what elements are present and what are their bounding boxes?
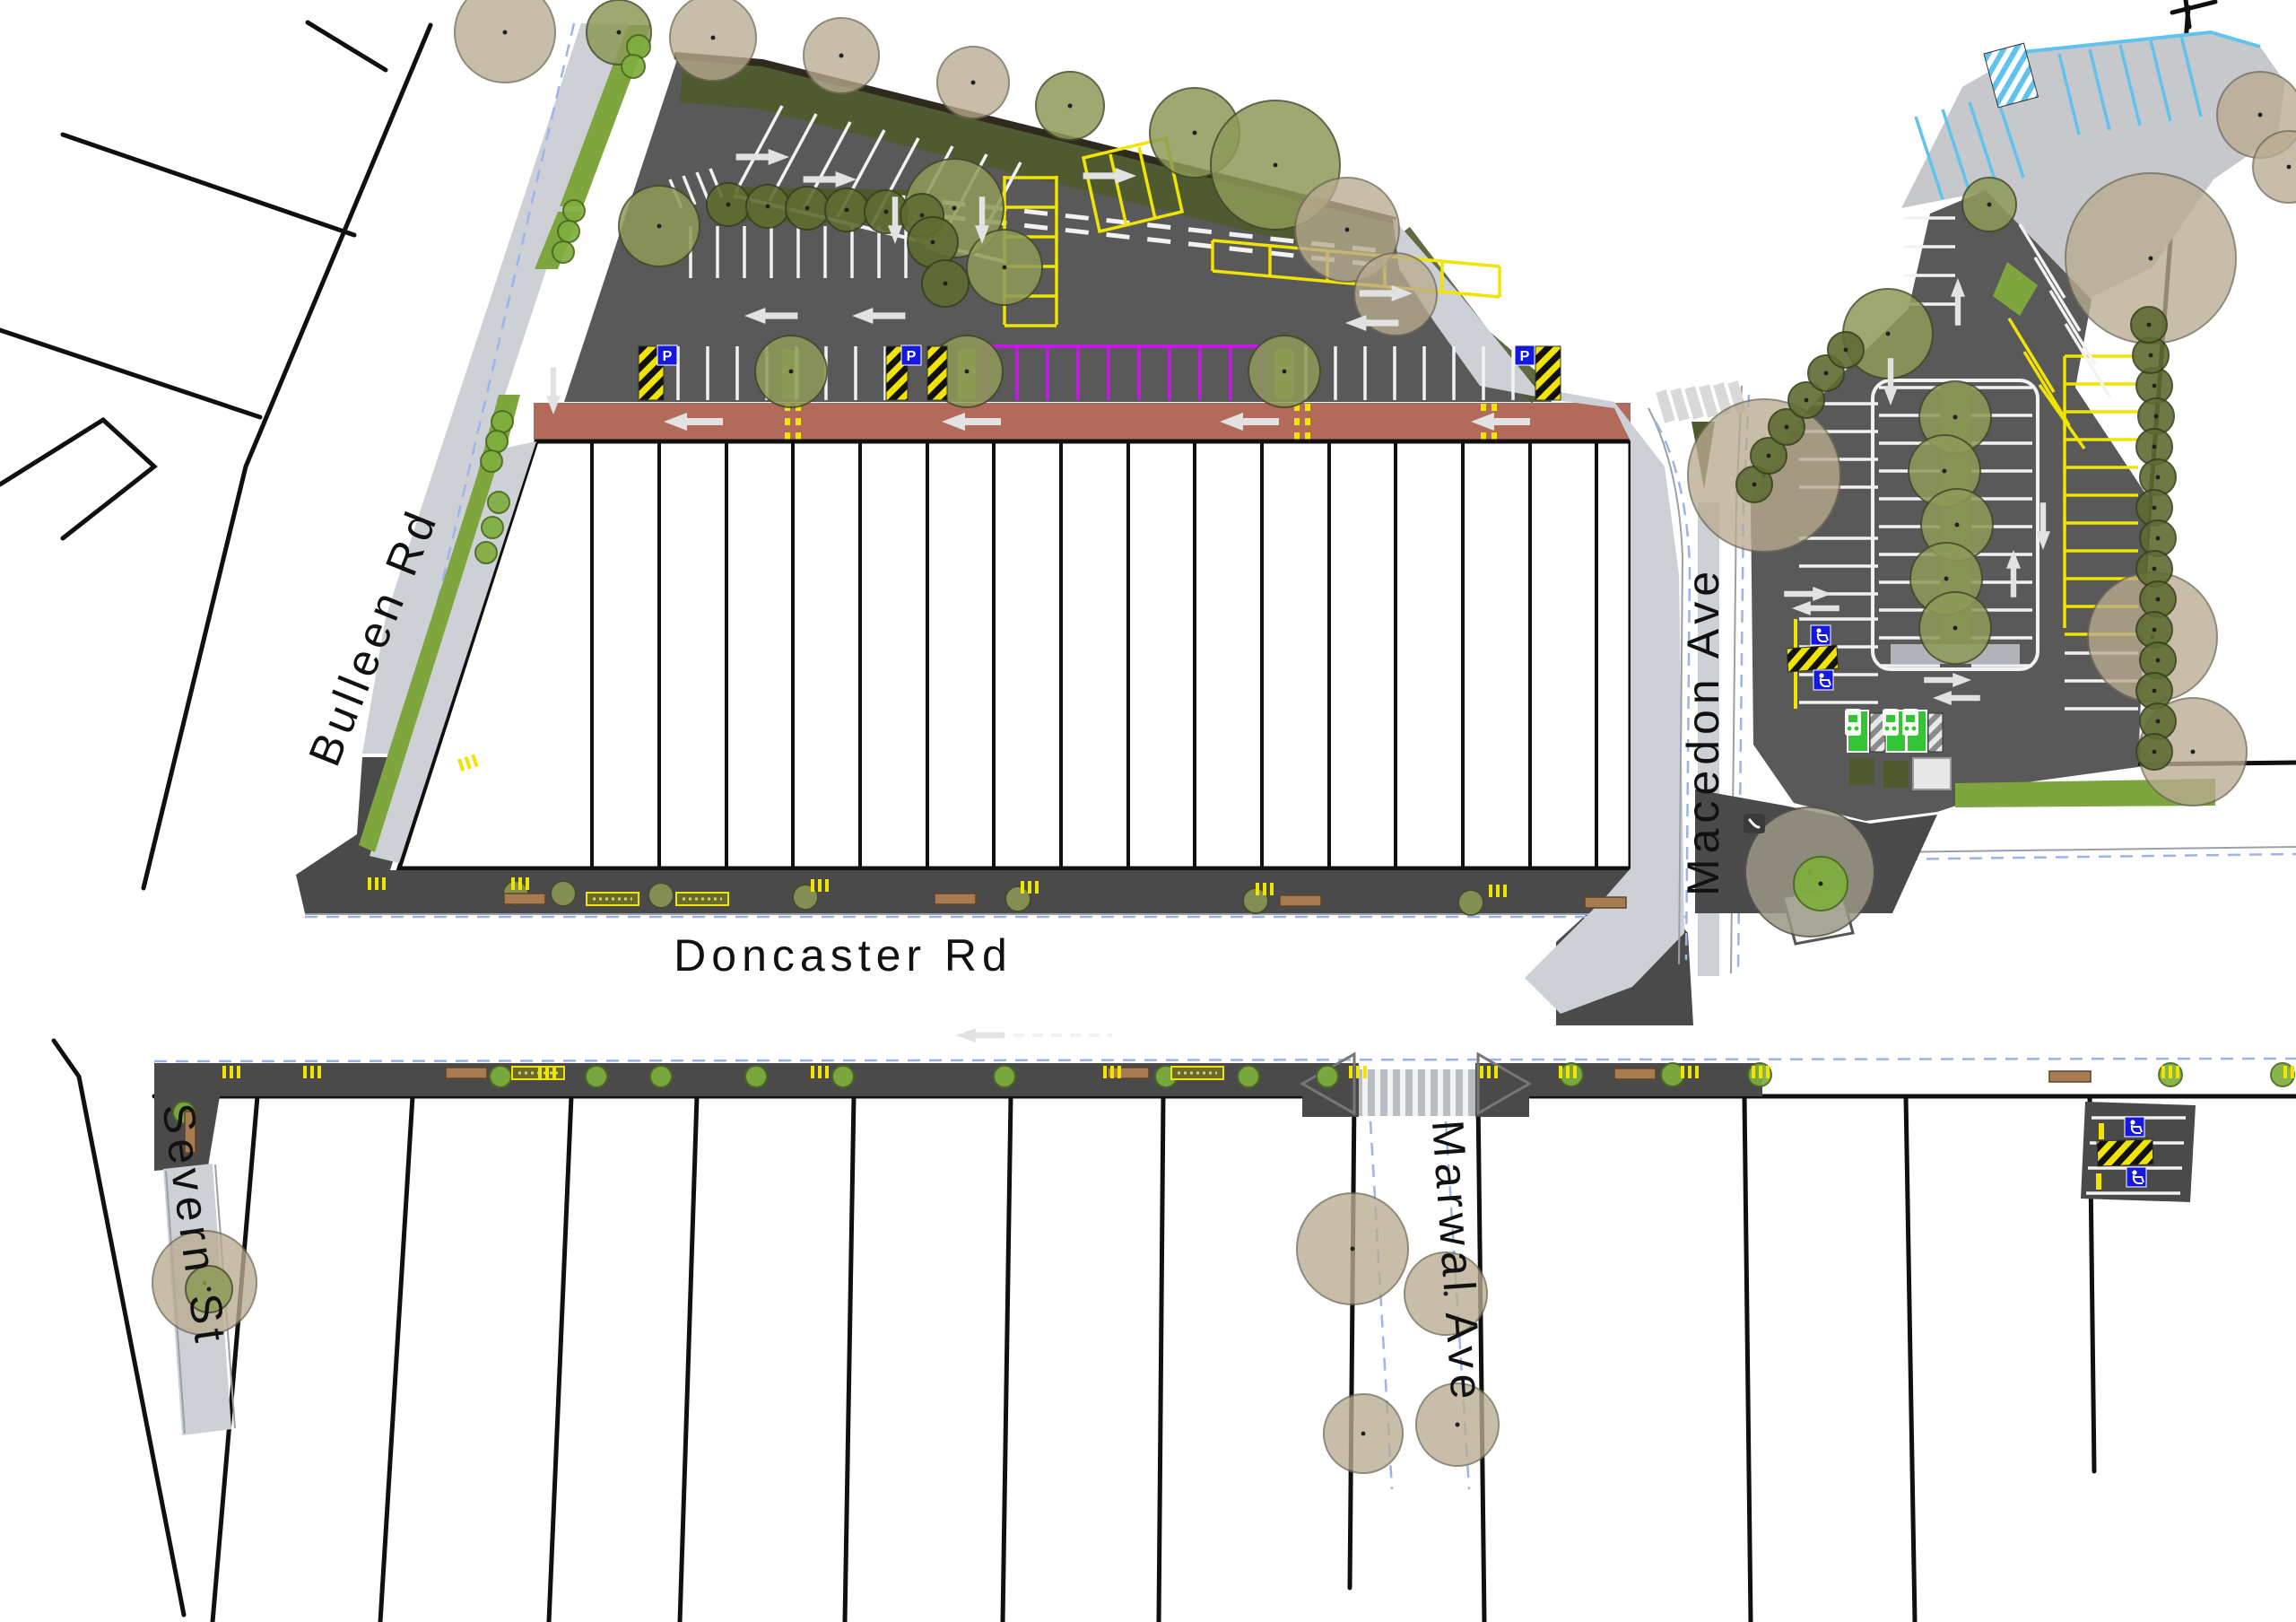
- tree-trunk-dot: [805, 206, 810, 211]
- tree-trunk-dot: [1943, 469, 1947, 474]
- tree-trunk-dot: [2152, 567, 2157, 571]
- garden-bed: [1883, 761, 1909, 788]
- bin-pad: [1913, 758, 1951, 789]
- bright-tree: [994, 1066, 1015, 1087]
- disabled-parking-sign: [2125, 1117, 2144, 1137]
- bright-tree: [650, 1066, 672, 1087]
- tree-trunk-dot: [944, 282, 948, 286]
- bike-rack-marker: [676, 893, 728, 905]
- tree-trunk-dot: [2258, 113, 2263, 118]
- bike-rack-marker: [587, 893, 639, 905]
- tree-trunk-dot: [1819, 882, 1823, 886]
- direction-arrow: [957, 1028, 1004, 1042]
- tree-trunk-dot: [2287, 165, 2292, 170]
- bright-tree: [586, 1066, 607, 1087]
- tree-trunk-dot: [711, 36, 716, 40]
- south-kerb-dashed: [154, 1059, 2296, 1061]
- tree-trunk-dot: [2152, 689, 2157, 693]
- bench: [935, 894, 976, 904]
- tree-trunk-dot: [931, 240, 935, 245]
- tree-trunk-dot: [1345, 228, 1350, 232]
- tree-trunk-dot: [920, 214, 925, 218]
- ev-charger-icon: [1883, 709, 1899, 736]
- bright-tree: [563, 200, 585, 222]
- tree-trunk-dot: [2152, 506, 2157, 510]
- tree-trunk-dot: [965, 370, 970, 374]
- boundary-segment: [308, 22, 386, 70]
- parking-meter-sign: P: [1515, 345, 1535, 365]
- building-outline: [399, 441, 1631, 868]
- bike-rack-marker: [1171, 1067, 1223, 1079]
- phone-icon: [1744, 814, 1765, 833]
- tree-trunk-dot: [1456, 1423, 1460, 1427]
- tree-trunk-dot: [1824, 371, 1829, 376]
- tree-trunk-dot: [2152, 384, 2157, 388]
- bench: [446, 1068, 487, 1078]
- angled-bay-line: [1690, 388, 1699, 418]
- bright-tree: [1560, 1063, 1583, 1086]
- no-stopping-hatch: [2097, 1139, 2153, 1166]
- boundary-segment: [0, 330, 260, 417]
- label-doncaster-rd: Doncaster Rd: [674, 930, 1013, 981]
- striped-bay: [1928, 713, 1943, 752]
- tree-trunk-dot: [1987, 203, 1992, 207]
- bright-tree: [481, 450, 502, 472]
- olive-tree: [1005, 886, 1031, 911]
- beige-tree: [670, 0, 756, 81]
- bright-tree: [832, 1066, 854, 1087]
- tree-trunk-dot: [1068, 104, 1073, 109]
- retail-building: [359, 441, 1631, 868]
- bench: [1614, 1068, 1656, 1079]
- tree-trunk-dot: [1886, 332, 1891, 336]
- tree-trunk-dot: [657, 224, 662, 229]
- crossing-stripes: [1365, 1069, 1465, 1116]
- tree-trunk-dot: [845, 208, 849, 213]
- angled-bay-line: [1661, 391, 1670, 422]
- no-stopping-hatch: [927, 346, 947, 400]
- tree-trunk-dot: [2154, 414, 2159, 419]
- south-lane-dashed: [1883, 854, 2296, 859]
- tree-trunk-dot: [1944, 577, 1949, 581]
- tree-trunk-dot: [2152, 750, 2157, 754]
- bright-tree: [1238, 1066, 1259, 1087]
- bright-tree: [558, 221, 579, 242]
- no-stopping-hatch: [1787, 645, 1839, 672]
- no-stopping-hatch: [1535, 346, 1561, 400]
- olive-tree: [551, 881, 576, 906]
- bright-tree: [622, 55, 645, 78]
- bright-tree: [1317, 1066, 1338, 1087]
- svg-text:P: P: [663, 349, 673, 364]
- tree-trunk-dot: [726, 203, 731, 207]
- tree-trunk-dot: [884, 210, 889, 214]
- tree-trunk-dot: [1003, 266, 1007, 270]
- svg-text:P: P: [1520, 349, 1530, 364]
- tree-trunk-dot: [766, 205, 770, 209]
- bright-tree: [491, 411, 513, 432]
- tree-trunk-dot: [2156, 536, 2161, 541]
- disabled-parking-sign: [1811, 625, 1831, 645]
- bright-tree: [475, 542, 497, 563]
- tree-trunk-dot: [2191, 750, 2196, 754]
- tree-trunk-dot: [2147, 323, 2152, 327]
- tree-trunk-dot: [617, 31, 622, 35]
- tree-trunk-dot: [1361, 1432, 1366, 1436]
- disabled-parking-sign: [2126, 1167, 2146, 1187]
- tree-trunk-dot: [1274, 163, 1278, 168]
- bright-tree: [552, 241, 574, 263]
- tree-trunk-dot: [1805, 398, 1809, 403]
- tree-trunk-dot: [952, 206, 957, 211]
- doncaster-road: [154, 870, 2296, 1489]
- bench: [1585, 897, 1626, 908]
- bright-tree: [490, 1066, 511, 1087]
- olive-tree: [648, 883, 674, 908]
- angled-bay-line: [1675, 389, 1684, 420]
- tree-trunk-dot: [503, 31, 508, 35]
- tree-trunk-dot: [1283, 370, 1287, 374]
- site-plan: PPP Bulleen Rd Doncaster Rd Macedon Ave …: [0, 0, 2296, 1622]
- label-marwal-ave: Marwal Ave: [1422, 1118, 1492, 1406]
- svg-text:P: P: [907, 349, 917, 364]
- parking-meter-sign: P: [657, 345, 677, 365]
- tree-trunk-dot: [2156, 658, 2161, 663]
- boundary-segment: [2172, 0, 2215, 27]
- tree-trunk-dot: [1953, 415, 1958, 420]
- bench: [1280, 895, 1321, 906]
- tree-trunk-dot: [1351, 1247, 1355, 1251]
- bright-tree: [745, 1066, 767, 1087]
- bright-tree: [488, 492, 509, 513]
- lot-boundaries-south: [213, 1096, 2094, 1622]
- ev-charger-icon: [1845, 709, 1861, 736]
- olive-tree: [1458, 890, 1483, 915]
- tree-trunk-dot: [2156, 597, 2161, 602]
- disabled-parking-sign: [1813, 670, 1833, 690]
- boundary-segment: [0, 420, 154, 538]
- tree-trunk-dot: [1955, 523, 1960, 528]
- boundary-segment: [63, 135, 354, 235]
- bright-tree: [482, 517, 503, 538]
- tree-trunk-dot: [1752, 483, 1757, 487]
- parking-meter-sign: P: [901, 345, 921, 365]
- tree-trunk-dot: [1785, 425, 1789, 430]
- tree-trunk-dot: [1953, 626, 1958, 631]
- tree-trunk-dot: [1193, 131, 1197, 135]
- tree-trunk-dot: [2149, 353, 2153, 358]
- tree-trunk-dot: [2156, 475, 2161, 480]
- tree-trunk-dot: [1767, 454, 1771, 458]
- tree-trunk-dot: [789, 370, 794, 374]
- label-macedon-ave: Macedon Ave: [1678, 566, 1728, 896]
- angled-bay-line: [1704, 386, 1713, 416]
- bright-tree: [486, 431, 508, 452]
- tree-trunk-dot: [971, 81, 976, 85]
- tree-trunk-dot: [2152, 445, 2157, 449]
- site-plan-canvas: PPP Bulleen Rd Doncaster Rd Macedon Ave …: [0, 0, 2296, 1622]
- bench: [504, 894, 545, 904]
- ev-charger-icon: [1902, 709, 1918, 736]
- tree-trunk-dot: [1844, 348, 1848, 353]
- garden-bed: [1849, 758, 1874, 785]
- tree-trunk-dot: [2149, 257, 2153, 261]
- south-lane-kerb: [1883, 847, 2296, 852]
- bench: [2049, 1071, 2091, 1082]
- tree-trunk-dot: [839, 54, 844, 58]
- tree-trunk-dot: [2156, 719, 2161, 724]
- tree-trunk-dot: [2152, 628, 2157, 632]
- beige-tree: [455, 0, 555, 83]
